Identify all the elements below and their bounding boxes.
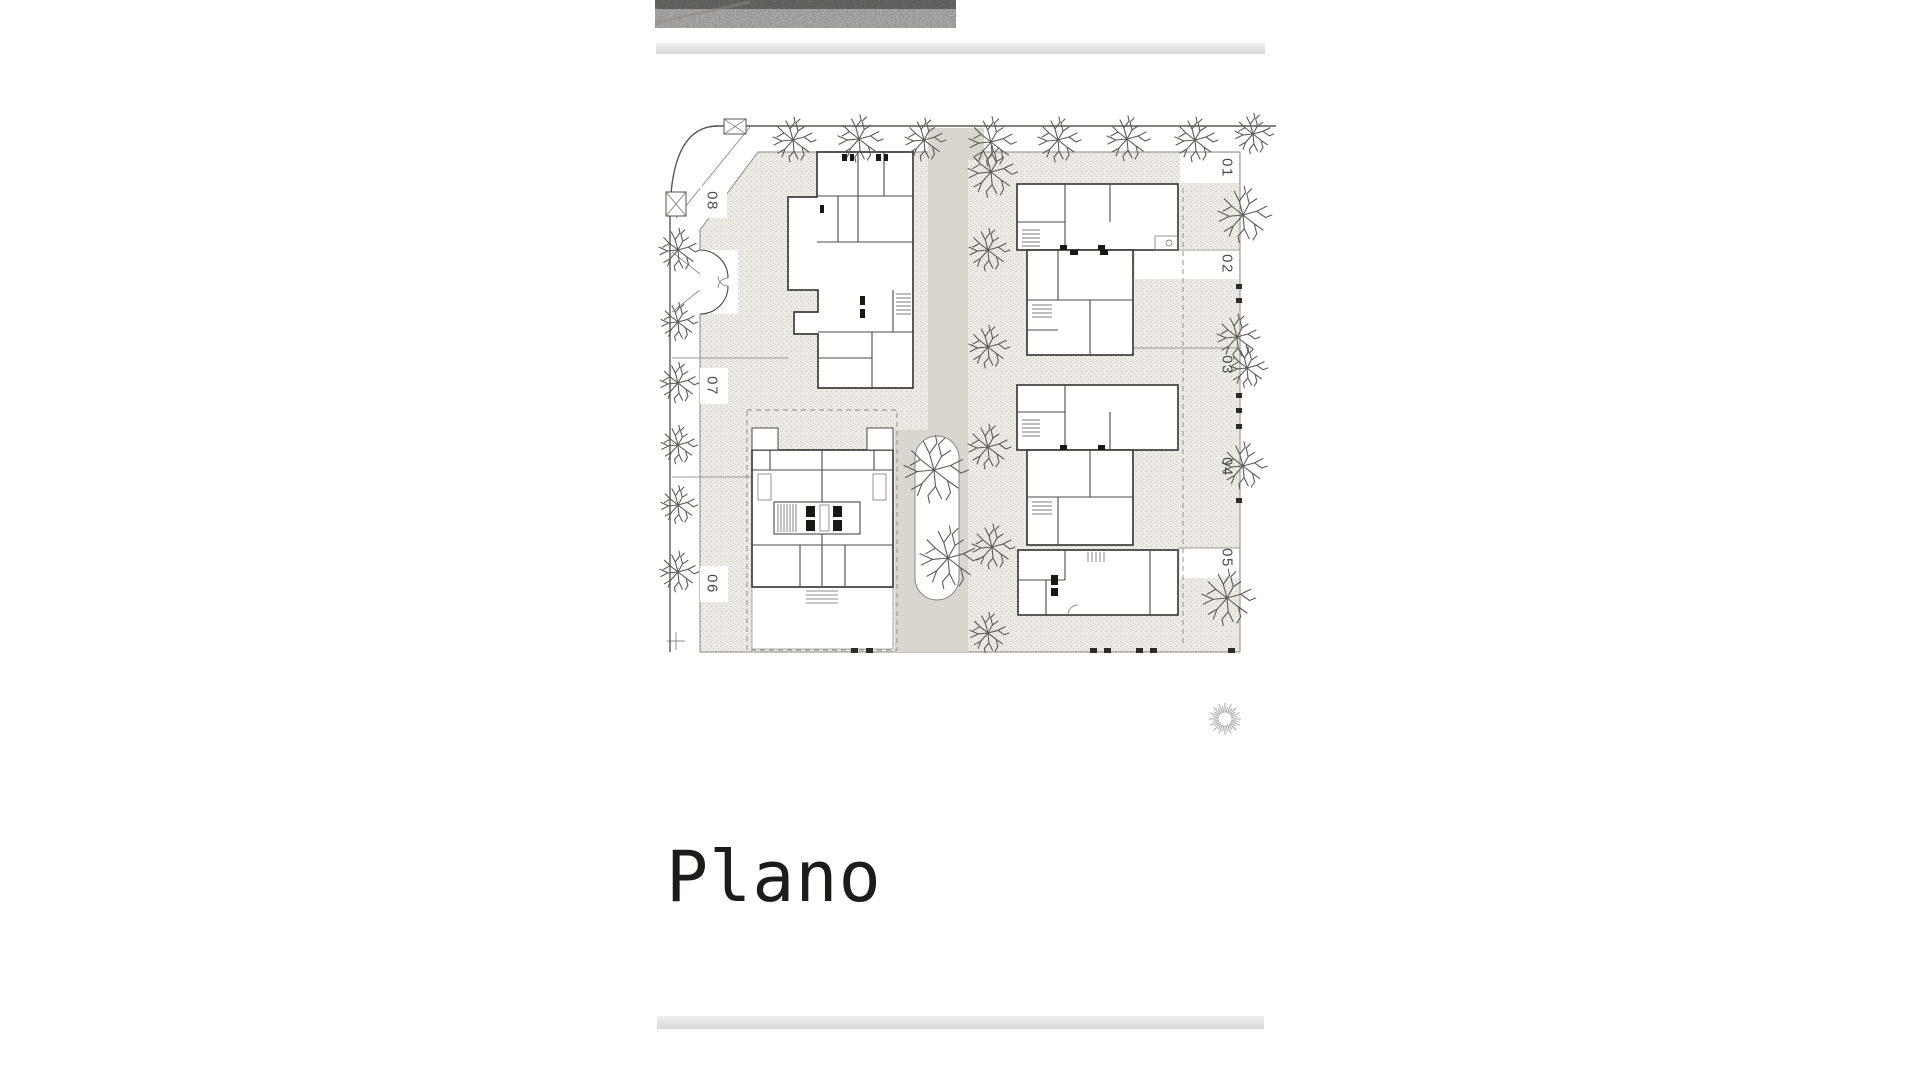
building-lot-05 <box>1018 550 1178 615</box>
sun-ray <box>1226 706 1227 712</box>
tree-icon <box>661 425 698 463</box>
page-root: 0807060102030405 Plano gene- ral. <box>0 0 1920 1080</box>
entrance-gate <box>672 250 738 314</box>
top-divider <box>656 43 1265 54</box>
tree-icon <box>1235 113 1274 154</box>
hero-photo-strip <box>655 0 956 28</box>
tree-icon <box>660 362 699 403</box>
sun-ray <box>1226 725 1227 731</box>
lot-label-04: 04 <box>1219 457 1236 477</box>
bottom-divider <box>657 1016 1264 1029</box>
title-line-1: Plano <box>666 838 882 917</box>
lot-label-07: 07 <box>704 376 721 396</box>
site-plan-drawing: 0807060102030405 <box>650 88 1290 663</box>
lot-label-02: 02 <box>1219 254 1236 274</box>
sunburst-icon <box>1203 698 1247 742</box>
sun-ray <box>1212 717 1218 718</box>
lot-label-08: 08 <box>704 191 721 211</box>
photo-texture <box>655 0 956 28</box>
sun-ray <box>1212 720 1218 721</box>
lot-label-05: 05 <box>1219 548 1236 568</box>
tree-icon <box>660 551 699 592</box>
site-plan: 0807060102030405 <box>650 88 1290 663</box>
sun-ray <box>1223 706 1224 712</box>
tree-icon <box>661 485 698 523</box>
sun-ray <box>1231 720 1237 721</box>
title-line-2: gene- <box>666 1075 882 1080</box>
lot-label-01: 01 <box>1219 158 1236 178</box>
lot-label-03: 03 <box>1219 355 1236 375</box>
lot-label-06: 06 <box>704 574 721 594</box>
sun-ray <box>1231 717 1237 718</box>
sun-ray <box>1223 725 1224 731</box>
building-lots-06-07 <box>752 428 893 649</box>
